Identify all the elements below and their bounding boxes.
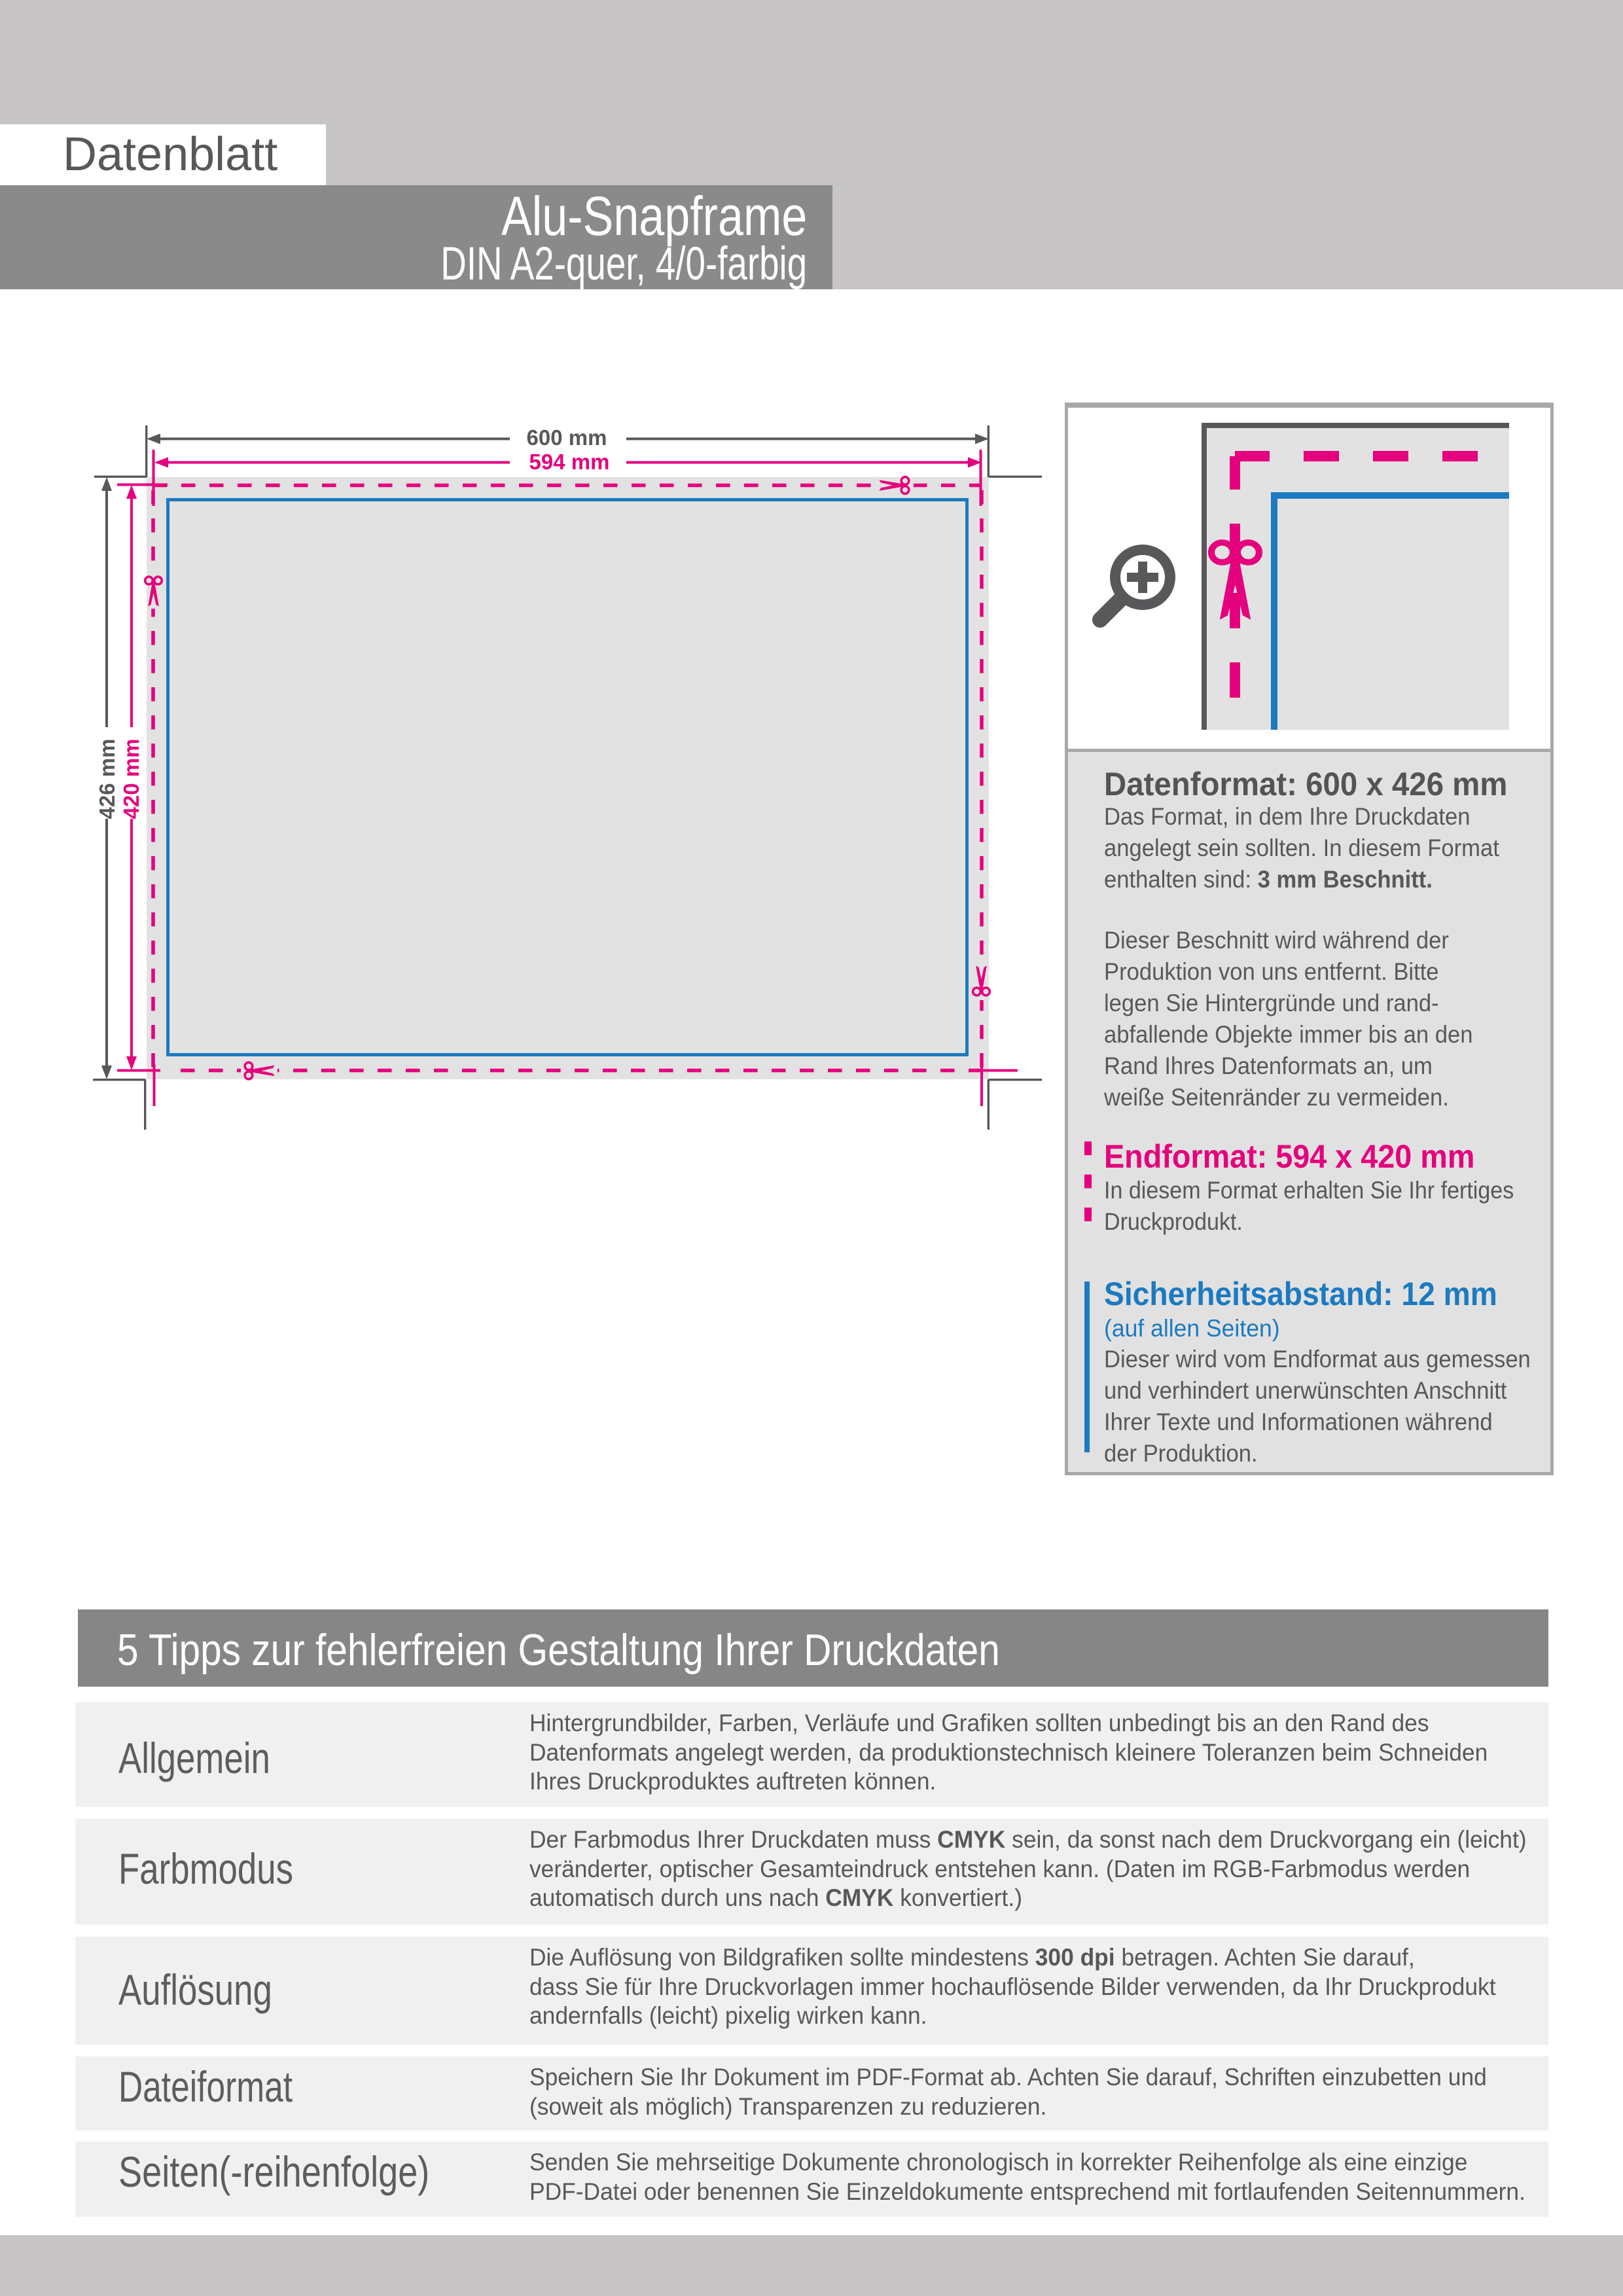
svg-text:594 mm: 594 mm	[529, 450, 610, 474]
svg-text:600 mm: 600 mm	[527, 425, 607, 450]
svg-text:426 mm: 426 mm	[95, 739, 119, 819]
svg-text:420 mm: 420 mm	[119, 739, 143, 819]
